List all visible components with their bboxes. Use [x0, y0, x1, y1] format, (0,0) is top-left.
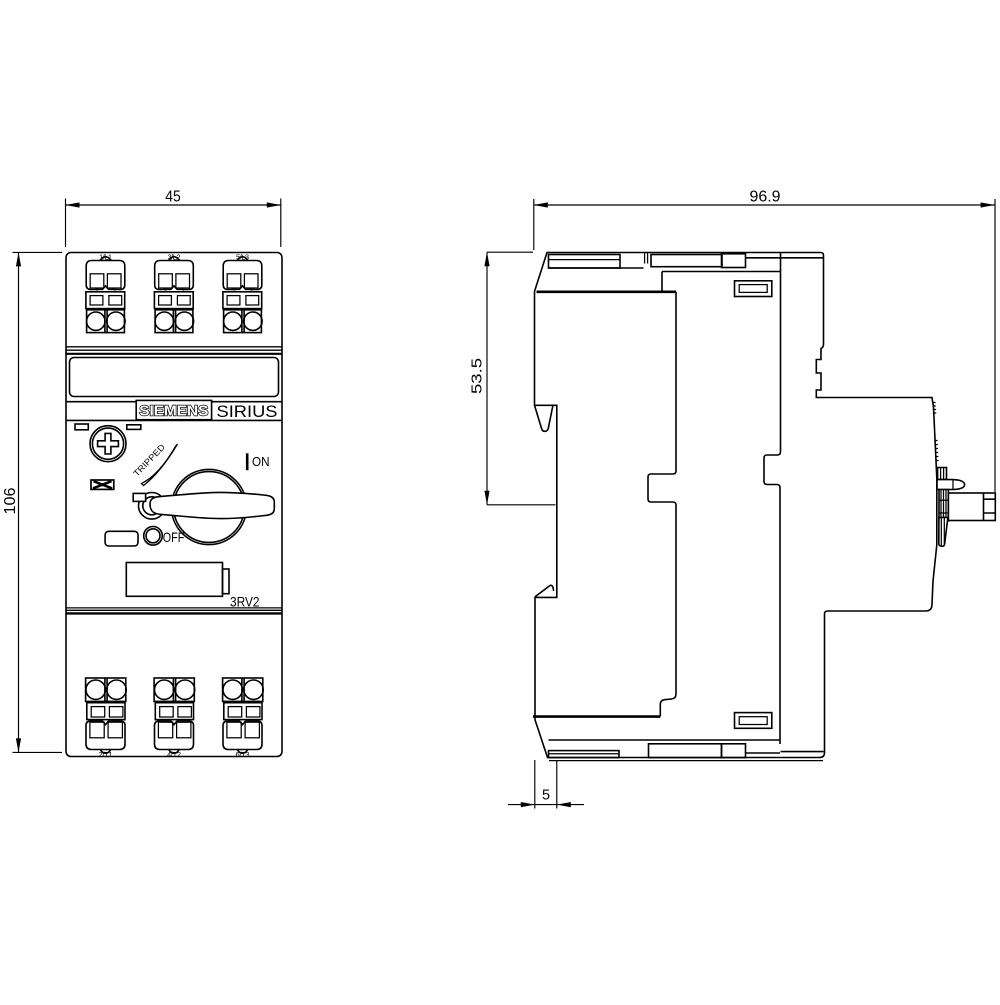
svg-text:OFF: OFF — [163, 530, 185, 545]
svg-text:45: 45 — [165, 189, 181, 206]
svg-text:5/L3: 5/L3 — [236, 253, 249, 262]
svg-text:SIEMENS: SIEMENS — [139, 403, 208, 419]
svg-text:3RV2: 3RV2 — [230, 594, 260, 609]
svg-text:TRIPPED: TRIPPED — [131, 442, 167, 478]
svg-text:6/T3: 6/T3 — [236, 750, 250, 759]
svg-text:2/T1: 2/T1 — [99, 750, 113, 759]
svg-text:1/L1: 1/L1 — [99, 253, 112, 262]
svg-text:4/T2: 4/T2 — [167, 750, 181, 759]
svg-text:5: 5 — [542, 788, 550, 804]
svg-text:96.9: 96.9 — [750, 189, 781, 206]
svg-text:SIRIUS: SIRIUS — [217, 403, 278, 421]
svg-text:53.5: 53.5 — [470, 358, 486, 394]
svg-text:3/L2: 3/L2 — [168, 253, 181, 262]
svg-text:106: 106 — [2, 488, 19, 515]
svg-text:ON: ON — [252, 454, 270, 469]
